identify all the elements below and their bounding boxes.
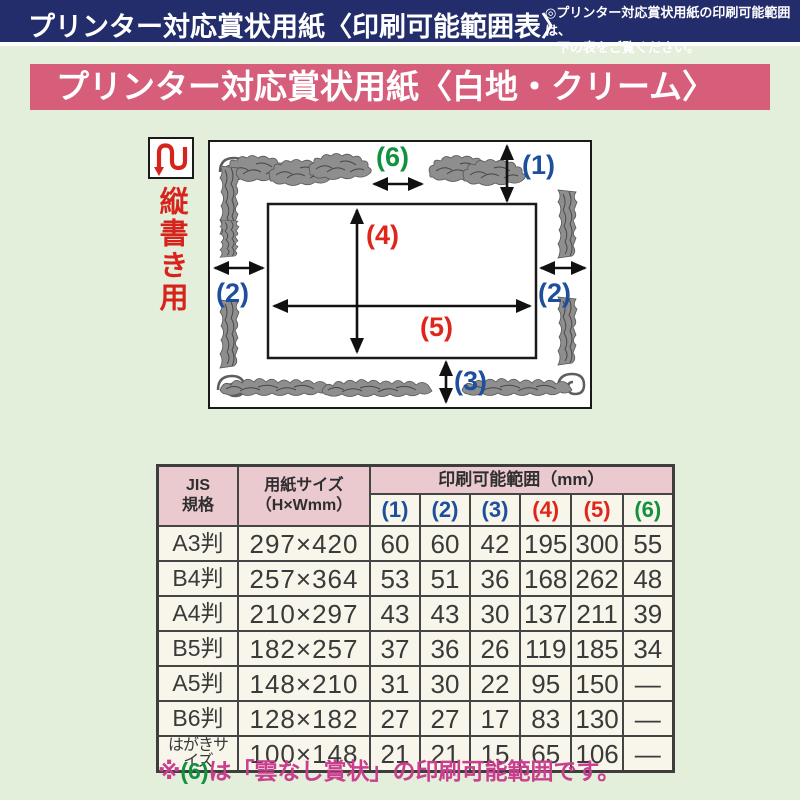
certificate-ornaments-and-arrows <box>210 142 590 407</box>
jis-header-line1: JIS <box>186 477 210 494</box>
jis-standard-cell: B6判 <box>158 701 239 736</box>
range-value-cell-4: 95 <box>520 666 571 701</box>
table-row: B4判257×36453513616826248 <box>158 561 674 596</box>
range-value-cell-3: 36 <box>470 561 520 596</box>
measure-label-2-left: (2) <box>216 280 249 307</box>
top-note-line2: 下の表をご覧ください。 <box>545 39 800 57</box>
certificate-paper: (1) (2) (2) (3) (4) (5) (6) <box>208 140 592 409</box>
jis-standard-cell: A5判 <box>158 666 239 701</box>
range-value-cell-5: 185 <box>571 631 622 666</box>
footnote-text: は「雲なし賞状」の印刷可能範囲です。 <box>209 758 621 784</box>
measure-label-1: (1) <box>522 152 555 179</box>
range-value-cell-2: 36 <box>420 631 470 666</box>
print-range-table: JIS 規格 用紙サイズ （H×Wmm） 印刷可能範囲（mm） (1)(2)(3… <box>156 464 675 773</box>
range-value-cell-3: 22 <box>470 666 520 701</box>
range-value-cell-2: 60 <box>420 526 470 561</box>
range-value-cell-6: — <box>623 736 674 772</box>
col-header-range: 印刷可能範囲（mm） <box>370 466 673 495</box>
range-value-cell-4: 137 <box>520 596 571 631</box>
range-value-cell-4: 168 <box>520 561 571 596</box>
range-value-cell-6: — <box>623 666 674 701</box>
range-value-cell-1: 37 <box>370 631 420 666</box>
paper-size-cell: 210×297 <box>238 596 370 631</box>
footnote-mark: ※ <box>158 758 180 784</box>
measure-label-3: (3) <box>454 368 487 395</box>
col-header-size: 用紙サイズ （H×Wmm） <box>238 466 370 527</box>
range-value-cell-3: 26 <box>470 631 520 666</box>
table-row: A4判210×29743433013721139 <box>158 596 674 631</box>
col-header-6: (6) <box>623 494 674 526</box>
range-value-cell-4: 119 <box>520 631 571 666</box>
size-header-line2: （H×Wmm） <box>256 497 352 514</box>
range-value-cell-2: 27 <box>420 701 470 736</box>
jis-standard-cell: A3判 <box>158 526 239 561</box>
range-value-cell-5: 211 <box>571 596 622 631</box>
measure-label-5: (5) <box>420 314 453 341</box>
paper-size-cell: 148×210 <box>238 666 370 701</box>
footnote: ※(6)は「雲なし賞状」の印刷可能範囲です。 <box>158 752 620 786</box>
paper-size-cell: 257×364 <box>238 561 370 596</box>
range-value-cell-6: 48 <box>623 561 674 596</box>
section-banner-title: プリンター対応賞状用紙〈白地・クリーム〉 <box>56 68 715 105</box>
page: プリンター対応賞状用紙〈印刷可能範囲表〉 ◎プリンター対応賞状用紙の印刷可能範囲… <box>0 0 800 800</box>
range-value-cell-4: 83 <box>520 701 571 736</box>
range-value-cell-1: 53 <box>370 561 420 596</box>
vertical-writing-label: 縦書き用 <box>150 186 192 316</box>
paper-feed-icon <box>148 137 194 179</box>
page-title: プリンター対応賞状用紙〈印刷可能範囲表〉 <box>28 5 568 44</box>
range-value-cell-5: 130 <box>571 701 622 736</box>
table-row: B5判182×25737362611918534 <box>158 631 674 666</box>
table-row: B6判128×18227271783130— <box>158 701 674 736</box>
print-area-rect <box>268 204 536 358</box>
range-value-cell-3: 30 <box>470 596 520 631</box>
range-value-cell-1: 27 <box>370 701 420 736</box>
jis-header-line2: 規格 <box>182 497 214 514</box>
range-value-cell-3: 42 <box>470 526 520 561</box>
range-value-cell-2: 30 <box>420 666 470 701</box>
paper-size-cell: 297×420 <box>238 526 370 561</box>
range-value-cell-2: 43 <box>420 596 470 631</box>
range-value-cell-5: 150 <box>571 666 622 701</box>
measure-label-6: (6) <box>376 144 409 171</box>
col-header-2: (2) <box>420 494 470 526</box>
jis-standard-cell: B4判 <box>158 561 239 596</box>
range-value-cell-6: 34 <box>623 631 674 666</box>
measure-label-2-right: (2) <box>538 280 571 307</box>
range-value-cell-1: 31 <box>370 666 420 701</box>
range-value-cell-6: 39 <box>623 596 674 631</box>
footnote-ref: (6) <box>180 758 208 784</box>
table-row: A3判297×42060604219530055 <box>158 526 674 561</box>
jis-standard-cell: A4判 <box>158 596 239 631</box>
size-header-line1: 用紙サイズ <box>264 477 344 494</box>
paper-size-cell: 182×257 <box>238 631 370 666</box>
range-value-cell-5: 262 <box>571 561 622 596</box>
jis-standard-cell: B5判 <box>158 631 239 666</box>
col-header-jis: JIS 規格 <box>158 466 239 527</box>
table-row: A5判148×21031302295150— <box>158 666 674 701</box>
col-header-5: (5) <box>571 494 622 526</box>
range-value-cell-1: 60 <box>370 526 420 561</box>
range-value-cell-1: 43 <box>370 596 420 631</box>
range-value-cell-5: 300 <box>571 526 622 561</box>
range-value-cell-6: — <box>623 701 674 736</box>
col-header-3: (3) <box>470 494 520 526</box>
col-header-4: (4) <box>520 494 571 526</box>
range-value-cell-3: 17 <box>470 701 520 736</box>
range-value-cell-6: 55 <box>623 526 674 561</box>
top-note-line1: ◎プリンター対応賞状用紙の印刷可能範囲は、 <box>545 4 800 39</box>
top-note: ◎プリンター対応賞状用紙の印刷可能範囲は、 下の表をご覧ください。 <box>545 4 800 57</box>
section-banner: プリンター対応賞状用紙〈白地・クリーム〉 <box>30 64 770 110</box>
print-range-table-wrap: JIS 規格 用紙サイズ （H×Wmm） 印刷可能範囲（mm） (1)(2)(3… <box>156 464 675 773</box>
paper-size-cell: 128×182 <box>238 701 370 736</box>
range-value-cell-2: 51 <box>420 561 470 596</box>
col-header-1: (1) <box>370 494 420 526</box>
range-value-cell-4: 195 <box>520 526 571 561</box>
measure-label-4: (4) <box>366 222 399 249</box>
